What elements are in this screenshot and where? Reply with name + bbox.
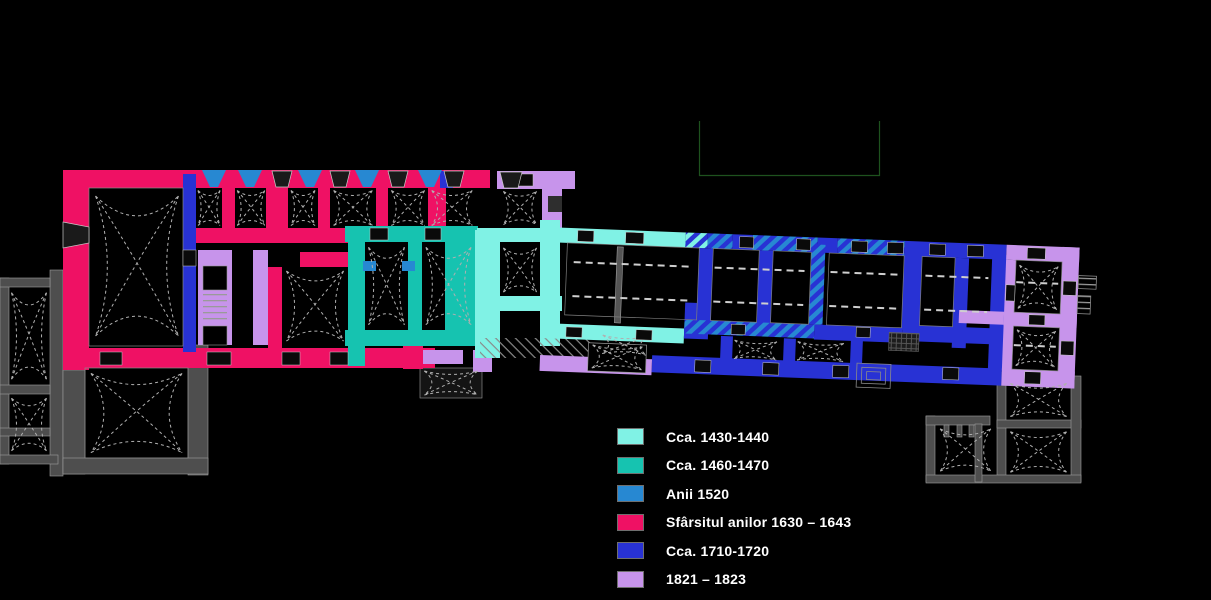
wall-block bbox=[548, 196, 562, 212]
vault-lines bbox=[797, 342, 844, 362]
vault-lines bbox=[1018, 265, 1058, 310]
legend-item: Anii 1520 bbox=[617, 486, 851, 501]
legend-label: Cca. 1430-1440 bbox=[666, 429, 769, 445]
ramp-stairs bbox=[480, 338, 592, 358]
survey-outline-green bbox=[700, 121, 880, 176]
phase-1460-walls bbox=[345, 226, 478, 366]
legend-swatch-1460 bbox=[617, 457, 644, 474]
legend-item: Cca. 1710-1720 bbox=[617, 543, 851, 558]
vault-lines bbox=[1016, 330, 1056, 367]
phase-1520-sills bbox=[363, 261, 415, 271]
legend-item: Cca. 1430-1440 bbox=[617, 429, 851, 444]
legend-label: Cca. 1460-1470 bbox=[666, 457, 769, 473]
legend-label: Cca. 1710-1720 bbox=[666, 543, 769, 559]
stairwell-cell bbox=[203, 326, 227, 345]
legend-item: Cca. 1460-1470 bbox=[617, 458, 851, 473]
legend-swatch-1821 bbox=[617, 571, 644, 588]
stair-treads bbox=[203, 292, 227, 324]
legend-label: Anii 1520 bbox=[666, 486, 729, 502]
legend-label: 1821 – 1823 bbox=[666, 571, 746, 587]
legend: Cca. 1430-1440 Cca. 1460-1470 Anii 1520 … bbox=[617, 429, 851, 587]
legend-swatch-1710 bbox=[617, 542, 644, 559]
legend-item: 1821 – 1823 bbox=[617, 572, 851, 587]
legend-swatch-1520 bbox=[617, 485, 644, 502]
legend-label: Sfârsitul anilor 1630 – 1643 bbox=[666, 514, 851, 530]
plan-canvas: Cca. 1430-1440 Cca. 1460-1470 Anii 1520 … bbox=[0, 0, 1211, 600]
legend-swatch-1430 bbox=[617, 428, 644, 445]
stairwell-cell bbox=[203, 266, 227, 290]
vault-lines bbox=[734, 340, 777, 360]
floor-plan bbox=[0, 0, 1211, 600]
legend-swatch-1630 bbox=[617, 514, 644, 531]
legend-item: Sfârsitul anilor 1630 – 1643 bbox=[617, 515, 851, 530]
stove-grid bbox=[889, 332, 920, 351]
